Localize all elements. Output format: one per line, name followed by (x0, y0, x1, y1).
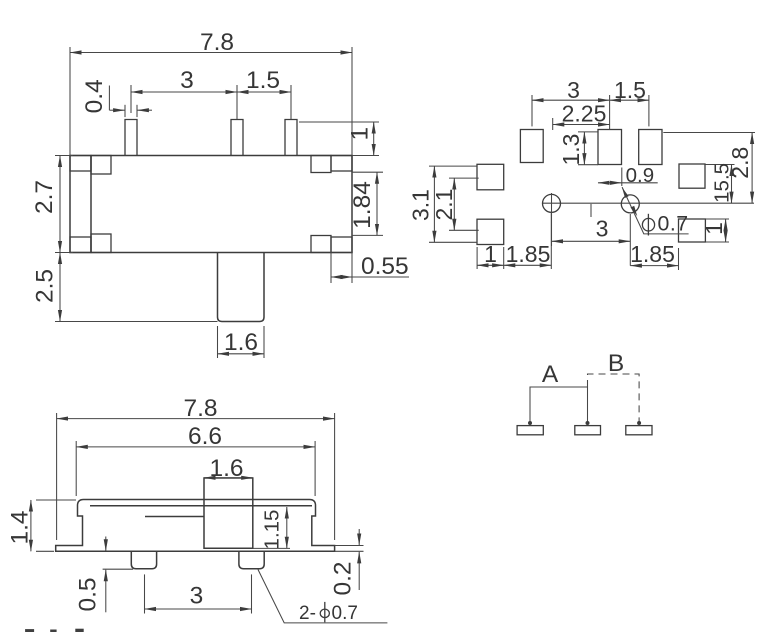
svg-text:0.55: 0.55 (361, 253, 409, 280)
svg-text:2.1: 2.1 (431, 189, 457, 221)
svg-text:0.2: 0.2 (329, 561, 356, 595)
svg-text:3: 3 (596, 216, 609, 242)
svg-text:3.1: 3.1 (408, 189, 434, 221)
svg-text:2.7: 2.7 (31, 180, 58, 214)
svg-text:A: A (542, 361, 559, 388)
svg-text:2.8: 2.8 (727, 147, 753, 179)
svg-text:7.8: 7.8 (183, 395, 217, 422)
svg-text:1: 1 (701, 222, 727, 235)
svg-text:1.5: 1.5 (246, 67, 280, 94)
svg-text:1: 1 (347, 127, 374, 141)
svg-text:0.7: 0.7 (658, 211, 689, 235)
svg-text:0.9: 0.9 (626, 164, 655, 187)
svg-text:1.15: 1.15 (260, 510, 283, 550)
svg-text:7.8: 7.8 (200, 29, 234, 56)
svg-text:0.5: 0.5 (75, 577, 102, 611)
svg-text:1.4: 1.4 (7, 510, 34, 544)
svg-text:B: B (608, 350, 624, 377)
svg-text:3: 3 (567, 77, 580, 103)
svg-text:2.5: 2.5 (32, 269, 59, 303)
svg-text:2-: 2- (299, 603, 316, 624)
svg-text:1.85: 1.85 (630, 241, 675, 267)
svg-text:0.4: 0.4 (81, 79, 108, 113)
svg-text:3: 3 (190, 583, 204, 610)
svg-text:1.5: 1.5 (614, 77, 646, 103)
svg-text:3: 3 (180, 67, 194, 94)
svg-text:6.6: 6.6 (188, 423, 222, 450)
svg-text:0.7: 0.7 (332, 603, 358, 624)
svg-text:1.85: 1.85 (506, 241, 551, 267)
svg-text:2.25: 2.25 (562, 101, 607, 127)
svg-text:1.3: 1.3 (558, 134, 584, 166)
svg-text:1.6: 1.6 (224, 329, 258, 356)
svg-text:1.6: 1.6 (209, 455, 243, 482)
svg-text:1: 1 (484, 241, 497, 267)
svg-text:1.84: 1.84 (349, 181, 376, 229)
